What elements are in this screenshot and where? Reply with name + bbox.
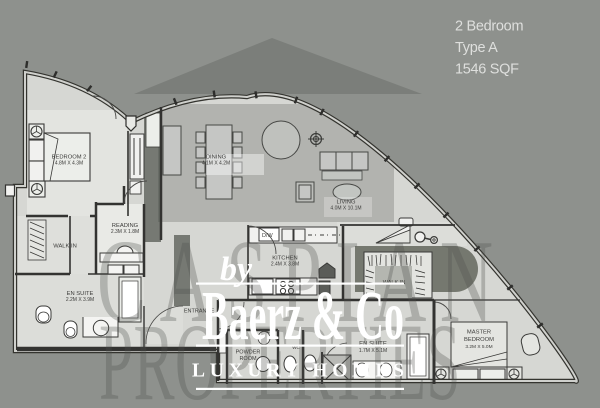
svg-text:2 Bedroom: 2 Bedroom bbox=[455, 19, 523, 35]
svg-text:WALK IN: WALK IN bbox=[53, 244, 77, 250]
svg-text:1546 SQF: 1546 SQF bbox=[455, 62, 519, 78]
svg-text:Baerz & Co: Baerz & Co bbox=[202, 278, 404, 355]
svg-text:4.8M X 4.3M: 4.8M X 4.3M bbox=[55, 161, 83, 167]
svg-text:4.1M X 4.2M: 4.1M X 4.2M bbox=[202, 161, 230, 167]
svg-text:2.2M X 3.9M: 2.2M X 3.9M bbox=[66, 297, 94, 303]
svg-text:4.0M X 10.1M: 4.0M X 10.1M bbox=[330, 206, 361, 212]
svg-text:Type A: Type A bbox=[455, 40, 498, 56]
